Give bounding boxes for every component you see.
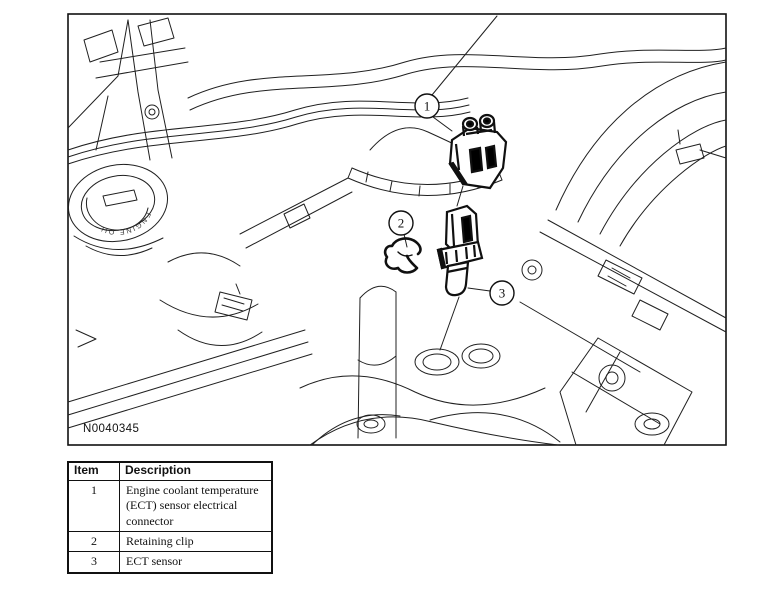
figure-number-label: N0040345	[83, 423, 139, 435]
callout-3: 3	[490, 281, 514, 305]
table-row: 2 Retaining clip	[68, 531, 272, 551]
parts-table-header-row: Item Description	[68, 462, 272, 480]
callout-1: 1	[415, 94, 439, 118]
item-number-cell: 2	[68, 531, 120, 551]
parts-table: Item Description 1 Engine coolant temper…	[67, 461, 273, 574]
engine-diagram: ENGINE OIL	[0, 0, 772, 456]
item-description-cell: Engine coolant temperature (ECT) sensor …	[120, 480, 273, 531]
item-description-cell: ECT sensor	[120, 552, 273, 573]
callout-1-number: 1	[424, 99, 431, 114]
item-number-cell: 3	[68, 552, 120, 573]
column-header-description: Description	[120, 462, 273, 480]
callout-3-number: 3	[499, 286, 506, 301]
table-row: 1 Engine coolant temperature (ECT) senso…	[68, 480, 272, 531]
item-description-cell: Retaining clip	[120, 531, 273, 551]
callout-2: 2	[389, 211, 413, 235]
manual-page: ENGINE OIL	[0, 0, 772, 590]
parts-table-container: Item Description 1 Engine coolant temper…	[67, 461, 273, 574]
table-row: 3 ECT sensor	[68, 552, 272, 573]
column-header-item: Item	[68, 462, 120, 480]
item-number-cell: 1	[68, 480, 120, 531]
callout-2-number: 2	[398, 216, 405, 231]
